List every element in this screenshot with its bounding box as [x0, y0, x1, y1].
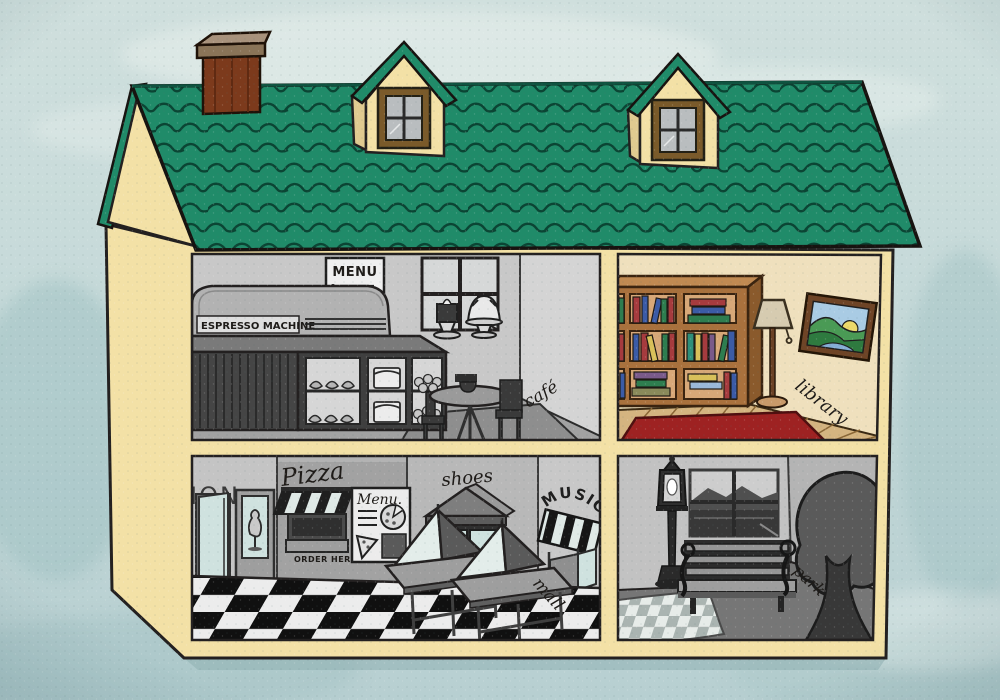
vignette [0, 0, 1000, 700]
dollhouse-illustration: MENU [0, 0, 1000, 700]
scene: MENU [0, 0, 1000, 700]
